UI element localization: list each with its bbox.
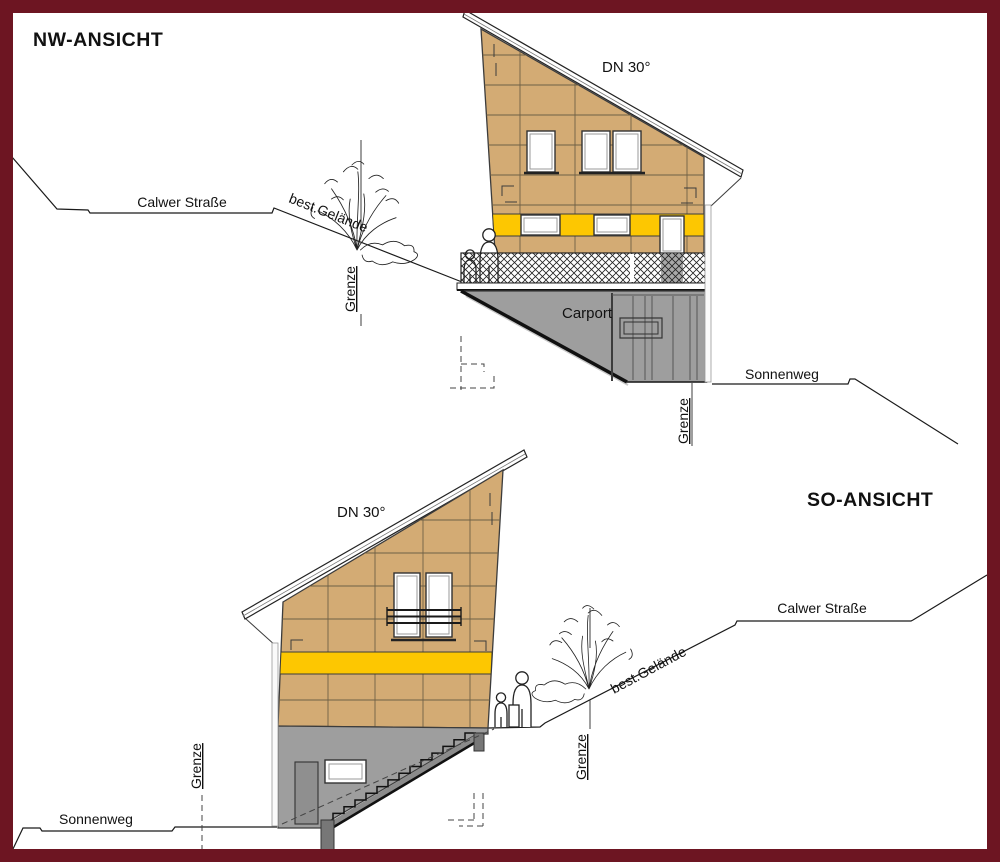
window [527,131,555,172]
person-figure [495,693,507,727]
boundary-label: Grenze [188,743,204,789]
boundary-label: Grenze [342,266,358,312]
street-label-calwer: Calwer Straße [137,194,227,210]
boundary-label: Grenze [675,398,691,444]
downpipe [705,205,711,382]
roof-pitch-label: DN 30° [602,59,651,76]
balcony-slab [457,283,707,290]
basement-window [325,760,366,783]
foundation-pier [321,820,334,852]
title-so-ansicht: SO-ANSICHT [807,489,933,511]
lower-accent-band [280,652,492,674]
street-label-calwer: Calwer Straße [777,600,867,616]
street-label-sonnenweg: Sonnenweg [745,366,819,382]
carport-label: Carport [562,305,613,322]
luggage-sketch [509,705,519,727]
boundary-label: Grenze [573,734,589,780]
balcony-door [660,216,684,254]
street-label-sonnenweg: Sonnenweg [59,811,133,827]
elevation-drawing-sheet: NW-ANSICHT DN 30° Calwer Straße best.Gel… [0,0,1000,862]
window [426,573,452,637]
window [613,131,641,172]
upper-window-row [524,131,645,173]
window [394,573,420,637]
drawing-canvas: NW-ANSICHT DN 30° Calwer Straße best.Gel… [0,0,1000,862]
roof-pitch-label: DN 30° [337,504,386,521]
railing-mesh [461,253,706,283]
basement-door [295,762,318,824]
title-nw-ansicht: NW-ANSICHT [33,29,163,51]
window [582,131,610,172]
downpipe [272,643,278,826]
